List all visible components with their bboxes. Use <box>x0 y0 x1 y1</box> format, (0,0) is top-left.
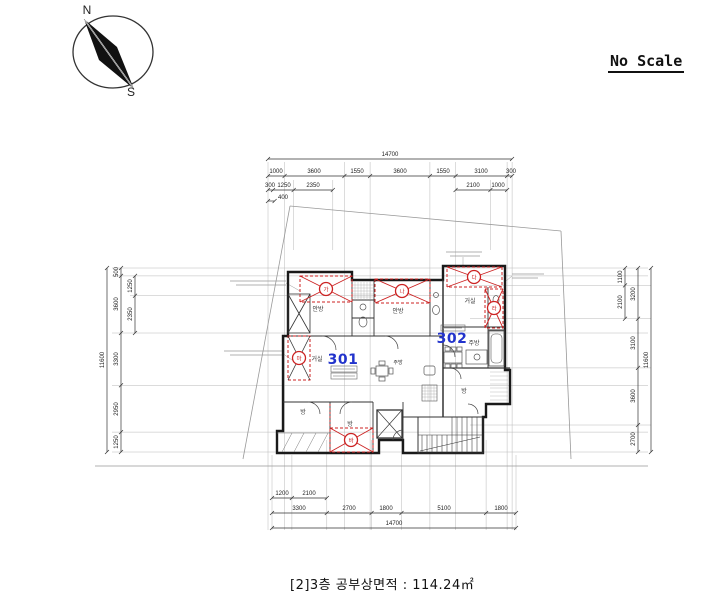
bath-fixtures <box>359 293 504 367</box>
room-label-room: 방 <box>347 420 353 428</box>
dim-label: 1800 <box>379 506 393 512</box>
dim-label: 300 <box>265 183 276 189</box>
dim-label: 1100 <box>618 270 624 284</box>
dim-label: 11600 <box>644 351 650 368</box>
room-label-living: 거실 <box>464 297 475 305</box>
room-label-living: 거실 <box>311 355 322 363</box>
dim-label: 11600 <box>100 351 106 368</box>
dim-label: 2700 <box>631 432 637 446</box>
room-label-kitchen: 주방 <box>468 339 480 347</box>
dim-label: 3200 <box>631 287 637 301</box>
dim-label: 1000 <box>269 169 283 175</box>
room-label-bedroom: 안방 <box>312 305 324 313</box>
dim-label: 3600 <box>631 389 637 403</box>
dim-label: 3300 <box>292 506 306 512</box>
dim-label: 2100 <box>466 183 480 189</box>
dim-label: 300 <box>506 169 517 175</box>
floorplan-drawing: N S <box>0 0 719 600</box>
dim-label: 2100 <box>618 295 624 309</box>
staircase <box>418 417 483 453</box>
dim-label: 1800 <box>494 506 508 512</box>
dim-label: 2350 <box>128 307 134 321</box>
room-label-room: 방 <box>300 408 306 416</box>
dim-label: 1200 <box>275 491 289 497</box>
marker-label: 바 <box>348 437 353 445</box>
furniture <box>371 347 487 381</box>
dim-label: 1250 <box>114 435 120 449</box>
area-caption: [2]3층 공부상면적 : 114.24㎡ <box>290 574 474 593</box>
dim-label: 3600 <box>307 169 321 175</box>
dim-label: 14700 <box>386 521 403 527</box>
dim-label: 1250 <box>277 183 291 189</box>
unit-301-label: 301 <box>328 352 359 368</box>
entry-tile <box>422 385 437 401</box>
room-label-room: 방 <box>461 387 467 395</box>
dimensions-top <box>266 157 514 203</box>
circled-markers: 가 나 다 라 마 바 <box>293 271 501 447</box>
dim-label: 5100 <box>437 506 451 512</box>
room-label-kitchen: 주방 <box>393 359 403 366</box>
dim-label: 2950 <box>114 402 120 416</box>
dim-label: 3100 <box>631 336 637 350</box>
unit-302-label: 302 <box>437 331 468 347</box>
dim-label: 3600 <box>114 297 120 311</box>
dim-label: 1250 <box>128 279 134 293</box>
dim-label: 1000 <box>491 183 505 189</box>
compass-rose: N S <box>73 3 153 99</box>
marker-label: 가 <box>323 286 328 294</box>
window-box <box>288 294 310 333</box>
dim-label: 500 <box>114 266 120 277</box>
compass-south-label: S <box>127 85 135 99</box>
floorplan-page: No Scale [2]3층 공부상면적 : 114.24㎡ N S <box>0 0 719 600</box>
dim-label: 1550 <box>436 169 450 175</box>
dim-label: 14700 <box>382 152 399 158</box>
dim-label: 3600 <box>393 169 407 175</box>
dimensions-right-labels: 1100 2100 3200 3100 3600 2700 11600 <box>618 270 650 446</box>
dimensions-left-labels: 11600 500 3600 3300 2950 1250 1250 2350 <box>100 266 134 448</box>
grid-lines <box>112 162 651 530</box>
elevator <box>377 410 402 438</box>
dim-label: 2100 <box>302 491 316 497</box>
marker-label: 마 <box>296 355 301 363</box>
balcony-hatch <box>277 433 330 452</box>
dimensions-top-labels: 14700 1000 3600 1550 3600 1550 3100 300 … <box>265 152 517 201</box>
marker-label: 라 <box>491 305 496 313</box>
dim-label: 3100 <box>474 169 488 175</box>
dim-label: 2700 <box>342 506 356 512</box>
dimensions-left <box>105 266 137 454</box>
scale-note: No Scale <box>608 52 684 73</box>
dim-label: 1550 <box>350 169 364 175</box>
compass-north-label: N <box>83 3 92 17</box>
dim-label: 400 <box>278 195 289 201</box>
dim-label: 2350 <box>306 183 320 189</box>
dim-label: 3300 <box>114 352 120 366</box>
room-label-bedroom: 안방 <box>392 307 404 315</box>
marker-label: 나 <box>399 288 404 296</box>
marker-label: 다 <box>471 274 476 282</box>
dimensions-bottom-labels: 1200 2100 3300 2700 1800 5100 1800 14700 <box>275 491 508 527</box>
